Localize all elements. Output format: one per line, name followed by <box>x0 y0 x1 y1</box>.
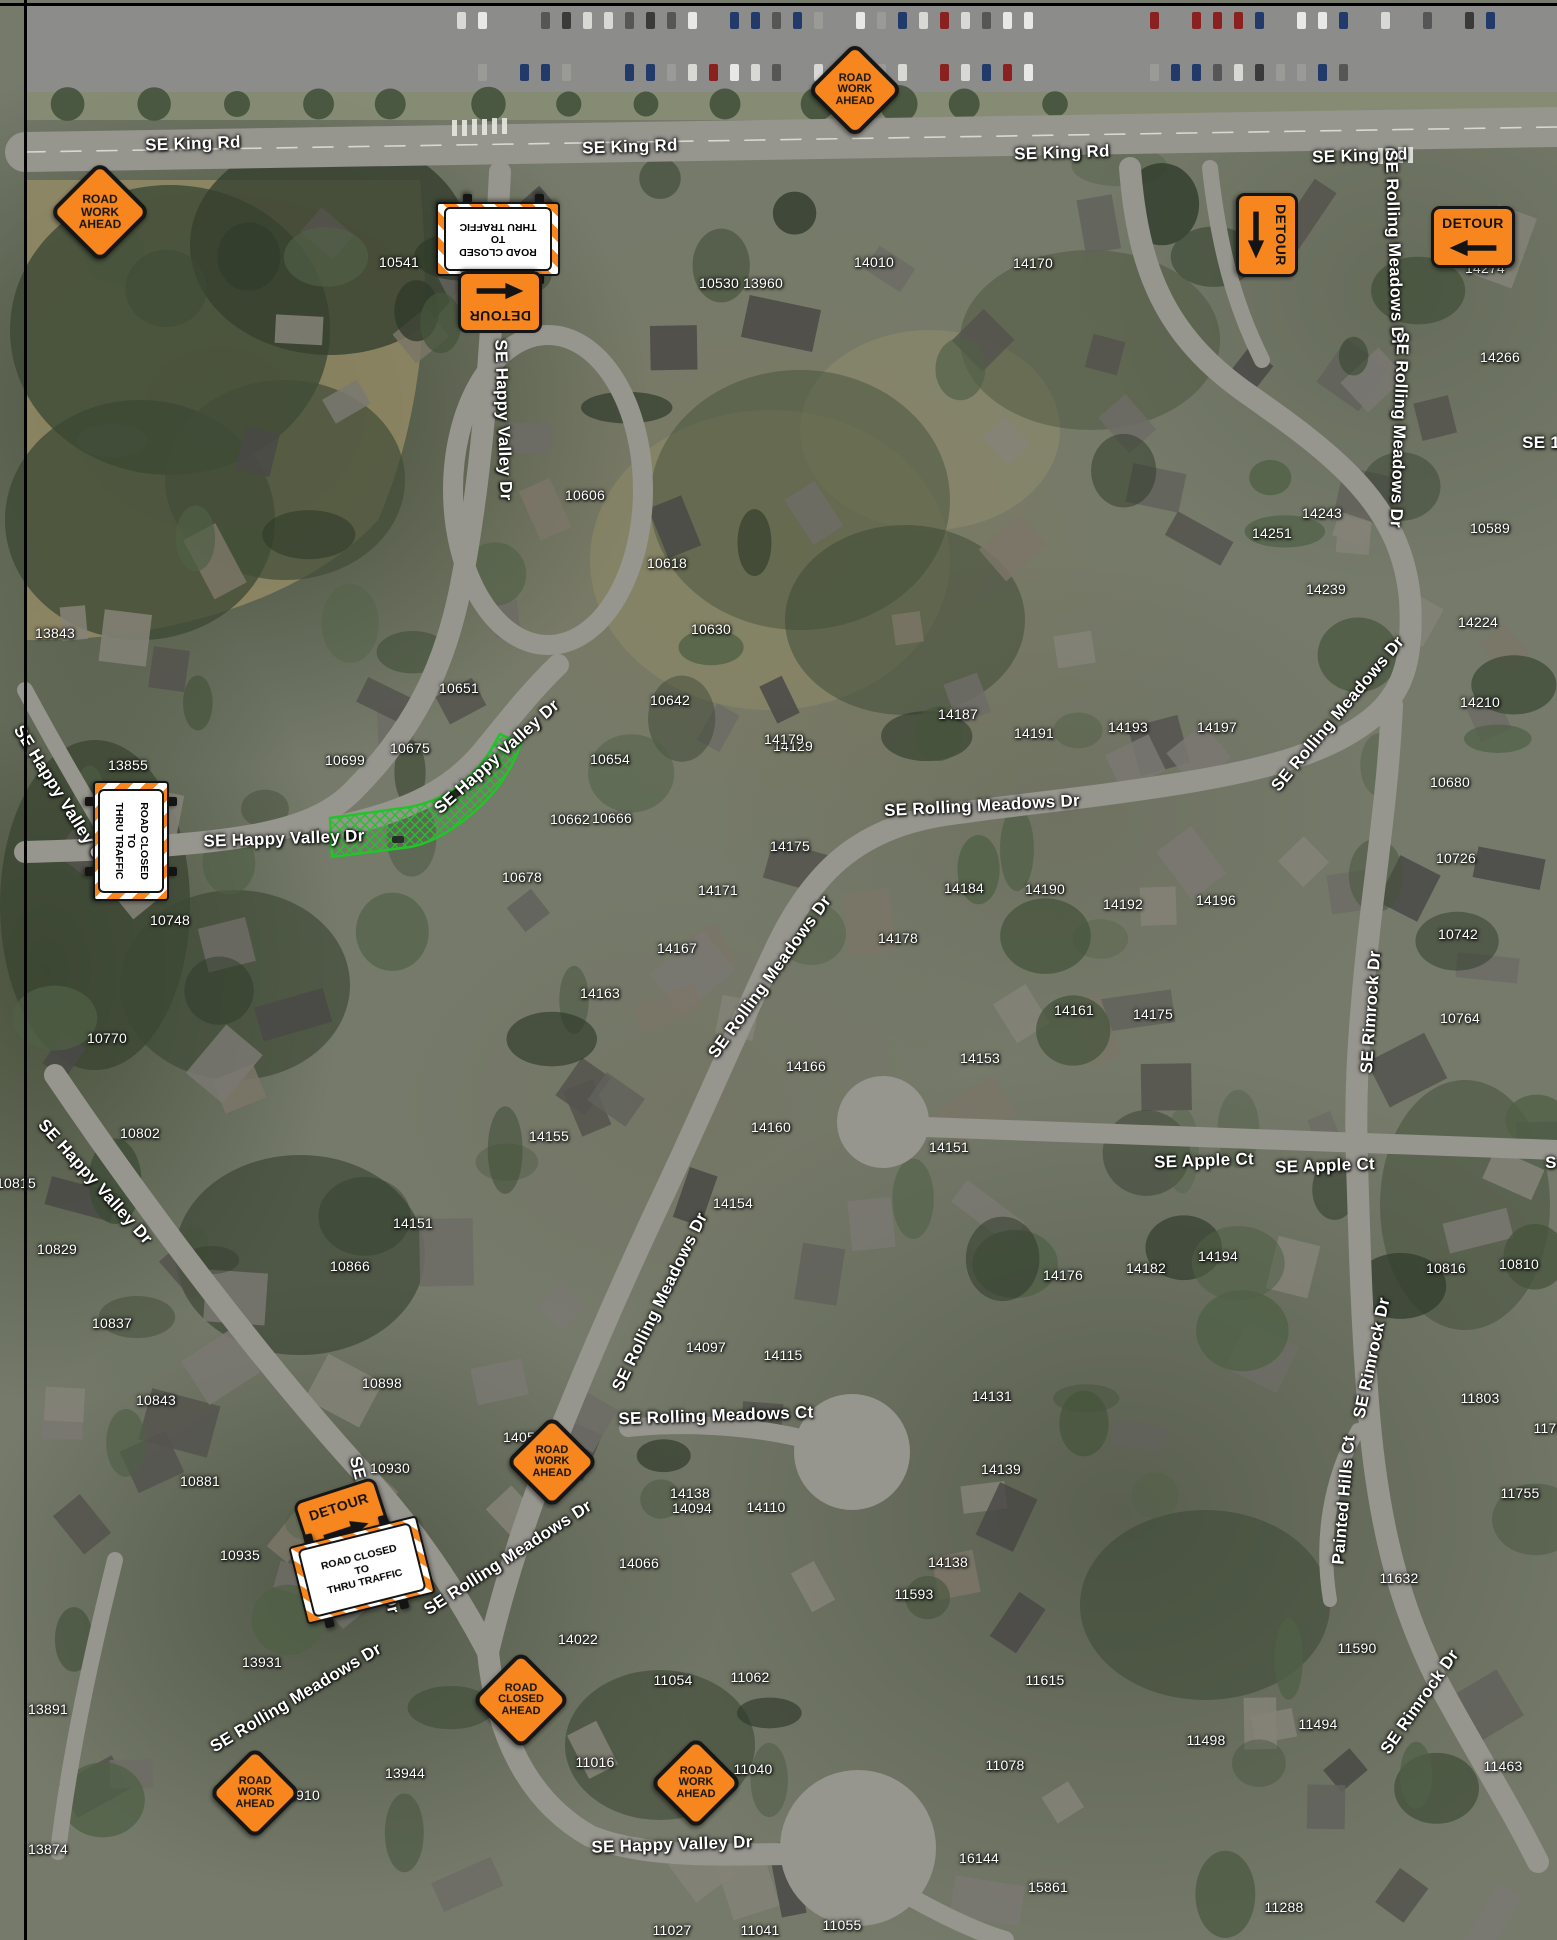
road-painted-hills-ct <box>1326 1430 1358 1600</box>
culdesac-apple-ct <box>837 1076 929 1168</box>
culdesac-rolling-meadows-ct <box>794 1394 910 1510</box>
aerial-basemap <box>0 0 1557 1940</box>
parking-lot <box>25 4 1557 120</box>
traffic-control-plan-map: SE King RdSE King RdSE King RdSE King Rd… <box>0 0 1557 1940</box>
map-frame-line-top <box>0 3 1557 6</box>
map-frame-line-left <box>24 0 27 1940</box>
